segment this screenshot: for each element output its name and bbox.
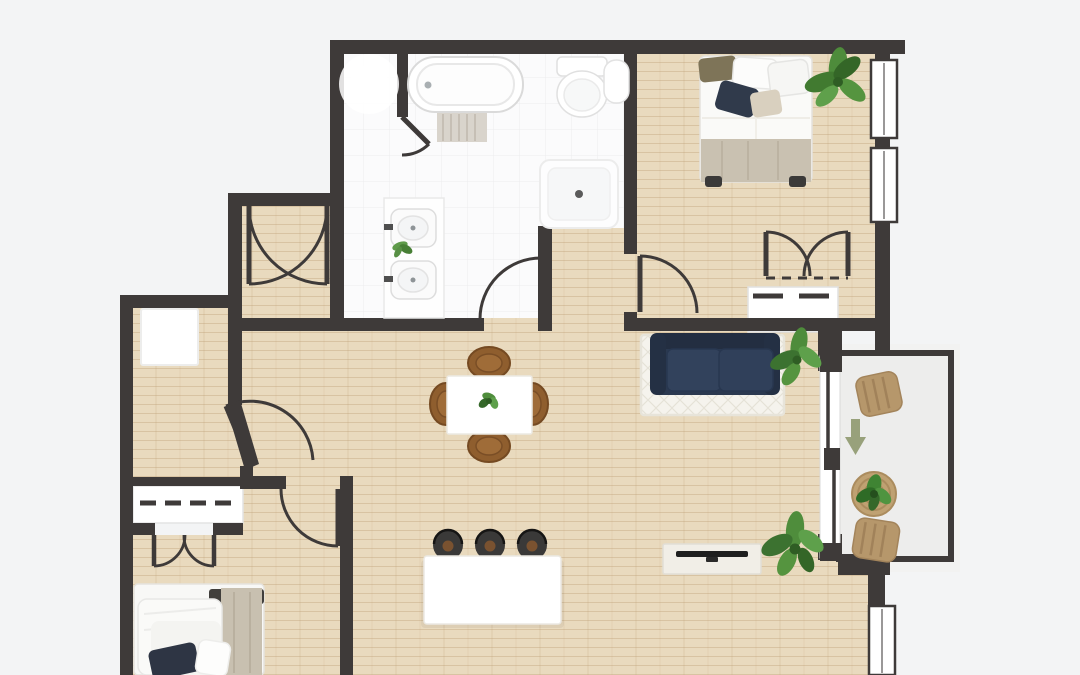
stool3-center — [527, 541, 538, 552]
wall-wardrobe-top — [126, 477, 246, 486]
bed1-door-threshold — [624, 254, 637, 312]
console-plant-center — [790, 544, 801, 555]
sofa-cushion2 — [719, 349, 773, 391]
dining-chair-top-seat — [476, 354, 502, 372]
shower-glow-inner — [350, 65, 388, 103]
wall-top — [330, 40, 905, 54]
bathtub-faucet — [425, 82, 432, 89]
bed2-door-threshold — [283, 476, 340, 489]
wall-closet-bath — [330, 206, 344, 331]
kitchen-island — [424, 556, 561, 624]
balcony-slider-mid-frame — [824, 448, 840, 470]
corner-basin — [604, 60, 629, 103]
bath-door-threshold — [484, 318, 538, 331]
wall-closet-left — [228, 193, 242, 405]
balcony-plant-center — [870, 490, 878, 498]
sofa-plant-center — [793, 356, 802, 365]
vanity-faucet2 — [384, 276, 393, 282]
floor-plan-canvas — [0, 0, 1080, 675]
wall-closet-bottom — [228, 318, 330, 331]
wall-bath-bed1-stub — [624, 312, 637, 331]
wall-bed2-door-stub — [240, 476, 286, 489]
sofa-cushion1 — [667, 349, 721, 391]
living-wood-lower-right — [822, 560, 868, 675]
dining-table — [447, 376, 532, 434]
tv-screen — [676, 551, 748, 557]
bed1-blanket — [701, 139, 811, 182]
entry-doormat — [141, 309, 198, 365]
wall-bed1-bottom — [637, 318, 877, 331]
balcony-chair1 — [854, 370, 903, 418]
bedroom2-furniture-layer — [134, 584, 264, 675]
floor-plan-stage — [0, 0, 1080, 675]
wall-balcony-right — [948, 350, 954, 562]
tv-stand — [706, 557, 718, 562]
wall-bed2-right — [340, 476, 353, 675]
shower-drain — [575, 190, 583, 198]
toilet-seat — [564, 79, 600, 111]
sofa-back — [656, 333, 774, 349]
closet-wood-floor — [242, 206, 330, 318]
stool2-center — [485, 541, 496, 552]
wall-bed2-seg1 — [133, 523, 155, 535]
dining-chair-bottom-seat — [476, 437, 502, 455]
bed1-pillow-beige — [749, 89, 783, 118]
entry-arrow-stem — [851, 419, 860, 438]
balcony-slider-top-frame — [820, 352, 842, 372]
wall-bath-bottom — [344, 318, 484, 331]
dining-plant-center — [486, 398, 492, 404]
wall-hall-top — [228, 193, 344, 206]
vanity-faucet1 — [384, 224, 393, 230]
vanity-sink2-drain — [411, 278, 416, 283]
bathtub-inner — [417, 64, 514, 105]
stool1-center — [443, 541, 454, 552]
bed2-throw — [195, 639, 232, 675]
wall-bed2-seg2 — [213, 523, 243, 535]
sofa-arm-left — [650, 333, 666, 395]
bath-hall-strip — [552, 228, 624, 331]
vanity-sink1-drain — [411, 226, 416, 231]
bath-mat — [437, 113, 487, 142]
bed1-leg-right — [789, 176, 806, 187]
bed1-plant-center — [833, 77, 843, 87]
balcony-chair2 — [851, 517, 901, 563]
bed1-leg-left — [705, 176, 722, 187]
wall-hall-topleft — [120, 295, 230, 308]
wall-bath-left — [330, 40, 344, 206]
wall-balcony-top — [836, 350, 954, 356]
